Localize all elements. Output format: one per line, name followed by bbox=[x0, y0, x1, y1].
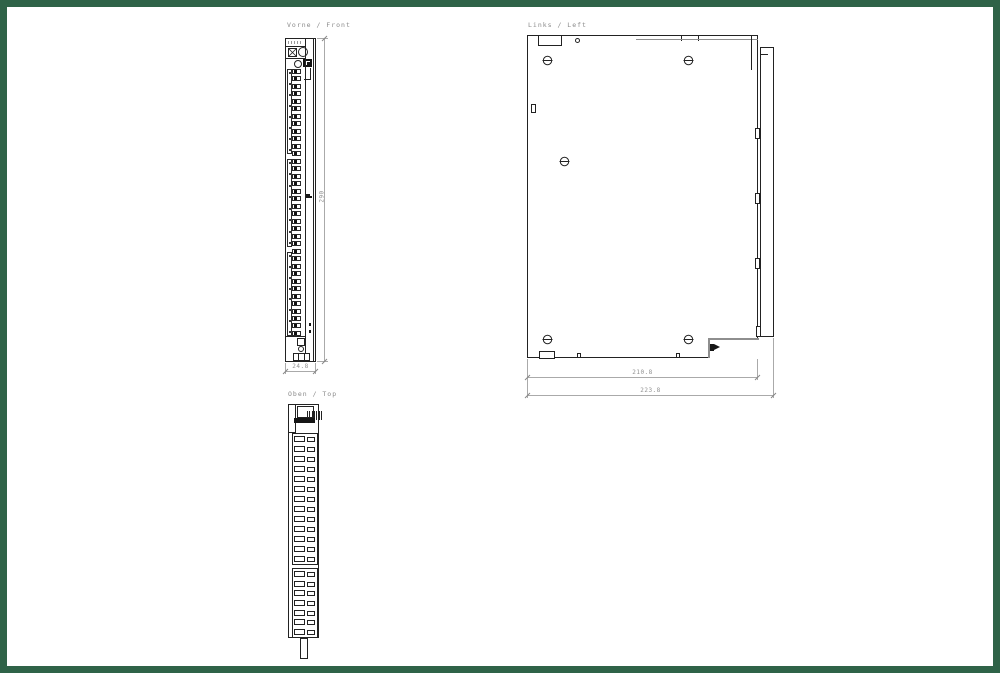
terminal-cell bbox=[292, 249, 301, 254]
screw-head-icon bbox=[683, 55, 694, 66]
terminal-cell bbox=[292, 159, 301, 164]
backplane-connector bbox=[297, 406, 314, 418]
terminal-cell bbox=[292, 271, 301, 276]
terminal-cell bbox=[292, 204, 301, 209]
top-view bbox=[288, 404, 319, 638]
terminal-cell bbox=[292, 91, 301, 96]
terminal-row bbox=[294, 610, 316, 616]
terminal-cell bbox=[292, 129, 301, 134]
left-view bbox=[527, 35, 758, 358]
terminal-row bbox=[294, 456, 316, 462]
dim-depth-outer: 223.8 bbox=[527, 387, 774, 394]
front-rail-strip bbox=[760, 47, 774, 337]
terminal-row bbox=[294, 436, 316, 442]
terminal-cell bbox=[292, 114, 301, 119]
terminal-row bbox=[294, 546, 316, 552]
terminal-cell bbox=[292, 181, 301, 186]
front-panel-line bbox=[305, 39, 306, 361]
rail-clip bbox=[755, 128, 760, 139]
terminal-cell bbox=[292, 99, 301, 104]
screw-head-icon bbox=[559, 156, 570, 167]
frame-border-right bbox=[993, 0, 1000, 673]
screw-head-icon bbox=[542, 334, 553, 345]
terminal-cell bbox=[292, 264, 301, 269]
terminal-row bbox=[294, 581, 316, 587]
terminal-row bbox=[294, 590, 316, 596]
connector-bar bbox=[294, 418, 315, 423]
right-leg-line bbox=[751, 36, 752, 70]
terminal-row bbox=[294, 446, 316, 452]
terminal-cell bbox=[292, 286, 301, 291]
terminal-cell bbox=[292, 189, 301, 194]
frame-border-bottom bbox=[0, 666, 1000, 673]
terminal-cell bbox=[292, 151, 301, 156]
terminal-row bbox=[294, 536, 316, 542]
terminal-row bbox=[294, 466, 316, 472]
terminal-row bbox=[294, 506, 316, 512]
lock-screw-icon bbox=[298, 346, 304, 352]
front-rail-line bbox=[313, 39, 314, 361]
terminal-cell bbox=[292, 76, 301, 81]
terminal-cell bbox=[292, 84, 301, 89]
terminal-cell bbox=[292, 234, 301, 239]
fine-print bbox=[288, 41, 301, 44]
bottom-bump bbox=[577, 353, 581, 358]
terminal-row bbox=[294, 556, 316, 562]
bottom-mount-tab bbox=[539, 351, 555, 359]
terminal-cell bbox=[292, 323, 301, 328]
terminal-cell bbox=[292, 294, 301, 299]
terminal-row bbox=[294, 486, 316, 492]
bottom-stem bbox=[300, 638, 308, 659]
terminal-cell bbox=[292, 219, 301, 224]
side-slot bbox=[531, 104, 536, 113]
terminal-cell bbox=[292, 309, 301, 314]
terminal-cell bbox=[292, 136, 301, 141]
led-indicator bbox=[309, 330, 311, 333]
top-edge-inner-line bbox=[636, 39, 758, 40]
top-mount-tab bbox=[538, 35, 562, 46]
rail-clip bbox=[755, 193, 760, 204]
terminal-row bbox=[294, 600, 316, 606]
terminal-cell bbox=[292, 196, 301, 201]
terminal-row bbox=[294, 496, 316, 502]
terminal-cell bbox=[292, 226, 301, 231]
terminal-cell bbox=[292, 256, 301, 261]
terminal-cell bbox=[292, 174, 301, 179]
terminal-row bbox=[294, 629, 316, 635]
terminal-strip bbox=[292, 69, 303, 336]
terminal-cell bbox=[292, 211, 301, 216]
terminal-cell bbox=[292, 121, 301, 126]
dim-line-width bbox=[285, 371, 316, 372]
mode-switch-icon bbox=[288, 48, 297, 57]
top-view-title: Oben / Top bbox=[288, 390, 337, 398]
terminal-row bbox=[294, 619, 316, 625]
frame-border-left bbox=[0, 0, 7, 673]
left-view-title: Links / Left bbox=[528, 21, 587, 29]
battery-cap-icon bbox=[294, 60, 302, 68]
dim-line-depth-inner bbox=[527, 377, 758, 378]
terminal-cell bbox=[292, 301, 301, 306]
detail-dot bbox=[310, 196, 312, 198]
terminal-section-a bbox=[292, 433, 318, 565]
lock-base bbox=[293, 353, 310, 361]
terminal-row bbox=[294, 526, 316, 532]
terminal-cell bbox=[292, 316, 301, 321]
terminal-cell bbox=[292, 144, 301, 149]
screw-head-icon bbox=[542, 55, 553, 66]
front-view bbox=[285, 38, 316, 362]
frame-border-top bbox=[0, 0, 1000, 7]
terminal-cell bbox=[292, 241, 301, 246]
mode-dial-icon bbox=[298, 47, 308, 57]
led-indicator bbox=[309, 323, 311, 326]
arrow-icon bbox=[714, 344, 720, 350]
step-line-h bbox=[708, 338, 759, 340]
front-view-title: Vorne / Front bbox=[287, 21, 351, 29]
dim-depth-inner: 210.8 bbox=[527, 369, 758, 376]
terminal-row bbox=[294, 476, 316, 482]
dim-line-depth-outer bbox=[527, 395, 774, 396]
drawing-canvas: Vorne / Front bbox=[0, 0, 1000, 673]
mech-separator bbox=[286, 336, 305, 337]
dim-front-height: 290 bbox=[319, 186, 326, 208]
terminal-row bbox=[294, 571, 316, 577]
terminal-cell bbox=[292, 106, 301, 111]
rail-clip bbox=[755, 258, 760, 269]
lock-slot bbox=[297, 338, 305, 346]
terminal-row bbox=[294, 516, 316, 522]
top-hole-icon bbox=[575, 38, 580, 43]
terminal-cell bbox=[292, 166, 301, 171]
screw-head-icon bbox=[683, 334, 694, 345]
rail-clip bbox=[756, 326, 761, 337]
terminal-section-b bbox=[292, 568, 318, 638]
terminal-cell bbox=[292, 279, 301, 284]
terminal-cell bbox=[292, 69, 301, 74]
dim-front-width: 24.8 bbox=[286, 363, 315, 370]
bottom-bump bbox=[676, 353, 680, 358]
